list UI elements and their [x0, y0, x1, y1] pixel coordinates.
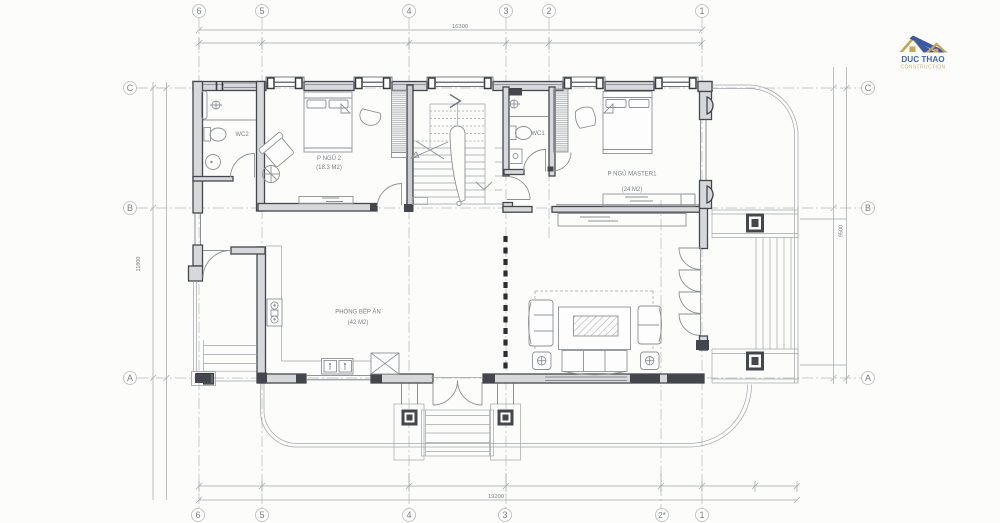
svg-text:6: 6 — [196, 6, 201, 16]
svg-text:B: B — [127, 203, 133, 213]
svg-text:2: 2 — [546, 6, 551, 16]
svg-text:11800: 11800 — [136, 257, 142, 272]
svg-text:3: 3 — [502, 510, 507, 520]
svg-text:19200: 19200 — [488, 494, 504, 500]
svg-text:1: 1 — [699, 510, 704, 520]
svg-text:DUC THAO: DUC THAO — [901, 55, 945, 64]
svg-text:A: A — [865, 373, 871, 383]
svg-text:9500: 9500 — [839, 225, 845, 237]
svg-text:(18.3 M2): (18.3 M2) — [316, 165, 342, 171]
svg-text:(24 M2): (24 M2) — [622, 187, 643, 193]
svg-text:16300: 16300 — [452, 24, 468, 30]
svg-text:4: 4 — [406, 6, 411, 16]
svg-text:WC1: WC1 — [531, 131, 545, 137]
svg-text:1: 1 — [699, 6, 704, 16]
svg-text:5: 5 — [259, 6, 264, 16]
svg-text:3: 3 — [503, 6, 508, 16]
svg-text:4: 4 — [406, 510, 411, 520]
svg-text:CONSTRUCTION: CONSTRUCTION — [900, 65, 945, 71]
svg-text:P NGỦ 2: P NGỦ 2 — [317, 155, 342, 162]
svg-text:PHÒNG BẾP ĂN: PHÒNG BẾP ĂN — [335, 309, 381, 316]
svg-text:2*: 2* — [658, 511, 666, 520]
svg-text:A: A — [127, 373, 133, 383]
svg-text:C: C — [127, 83, 134, 93]
svg-text:(42 M2): (42 M2) — [348, 320, 369, 326]
svg-text:C: C — [865, 83, 872, 93]
svg-text:6: 6 — [195, 510, 200, 520]
svg-text:B: B — [865, 203, 871, 213]
svg-text:5: 5 — [259, 510, 264, 520]
svg-text:WC2: WC2 — [235, 132, 249, 138]
svg-text:P NGỦ MASTER1: P NGỦ MASTER1 — [608, 171, 658, 178]
